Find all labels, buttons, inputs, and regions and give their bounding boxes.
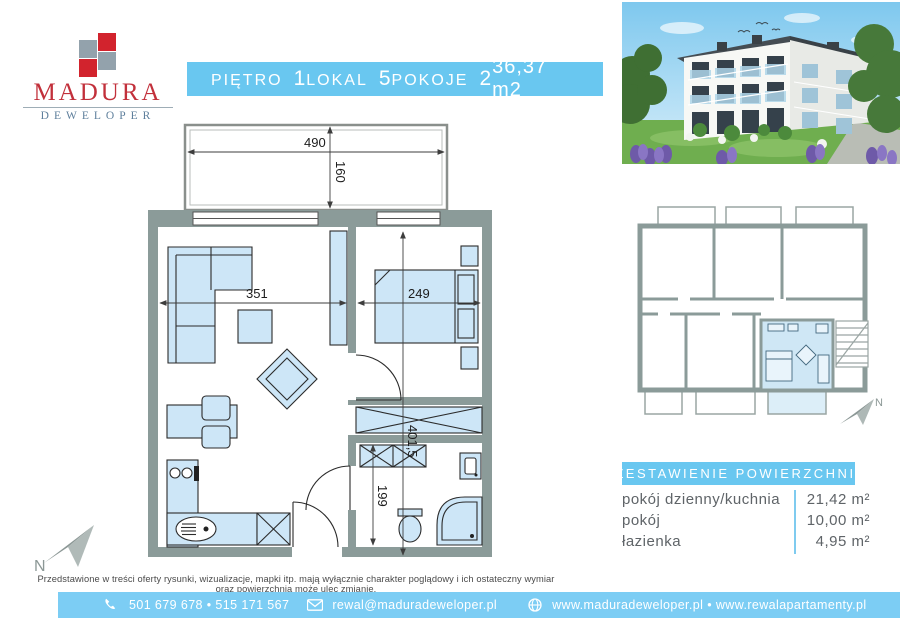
washing-machine	[460, 453, 481, 479]
kitchen-sink	[176, 517, 216, 541]
nightstand-top	[461, 246, 478, 266]
toilet	[398, 509, 422, 542]
dim-apartment-depth: 401,5	[405, 425, 420, 458]
side-table	[238, 310, 272, 343]
highlighted-unit	[761, 320, 833, 390]
logo-square-red-tr	[98, 33, 116, 51]
phone-contact[interactable]: 501 679 678 • 515 171 567	[104, 598, 289, 612]
websites: www.maduradeweloper.pl • www.rewalaparta…	[552, 598, 866, 612]
website-contact[interactable]: www.maduradeweloper.pl • www.rewalaparta…	[527, 598, 866, 612]
unit-header-banner: PIĘTRO 1 LOKAL 5 POKOJE 2 36,37 m2	[187, 62, 603, 96]
dim-balcony-width: 490	[304, 135, 326, 150]
logo-square-gray-tl	[79, 40, 97, 58]
areas-title: ZESTAWIENIE POWIERZCHNI:	[615, 466, 861, 481]
overview-north-label: N	[875, 397, 883, 409]
rooms-label: POKOJE	[392, 72, 469, 90]
radiator	[330, 231, 347, 345]
footer-contact-bar: 501 679 678 • 515 171 567 rewal@madurade…	[58, 592, 900, 618]
area-row: łazienka 4,95 m²	[622, 531, 872, 552]
north-arrow: N	[34, 525, 94, 575]
logo-square-gray-br	[98, 52, 116, 70]
globe-icon	[527, 598, 543, 612]
unit-label: LOKAL	[306, 72, 368, 90]
envelope-icon	[307, 598, 323, 612]
unit-group: LOKAL 5	[306, 67, 391, 91]
logo-square-red-bl	[79, 59, 97, 77]
disclaimer-text: Przedstawione w treści oferty rysunki, w…	[36, 574, 556, 594]
dim-bedroom-width: 249	[408, 286, 430, 301]
stairs	[836, 321, 868, 367]
brand-name: MADURA	[23, 80, 173, 105]
brochure-page: MADURA DEWELOPER PIĘTRO 1 LOKAL 5 POKOJE…	[0, 0, 900, 636]
dim-living-width: 351	[246, 286, 268, 301]
unit-value: 5	[379, 67, 392, 91]
areas-title-banner: ZESTAWIENIE POWIERZCHNI:	[622, 462, 855, 485]
area-row: pokój dzienny/kuchnia 21,42 m²	[622, 489, 872, 510]
email-contact[interactable]: rewal@maduradeweloper.pl	[307, 598, 497, 612]
areas-table: pokój dzienny/kuchnia 21,42 m² pokój 10,…	[622, 489, 872, 552]
building-overview-plan: N	[628, 193, 888, 433]
phone-numbers: 501 679 678 • 515 171 567	[129, 598, 289, 612]
rooms-group: POKOJE 2	[392, 67, 493, 91]
bed	[375, 270, 478, 343]
floor-group: PIĘTRO 1	[211, 67, 306, 91]
dim-hall-depth: 199	[375, 485, 390, 507]
floor-value: 1	[294, 67, 307, 91]
windows	[193, 212, 440, 225]
building-photo	[622, 2, 900, 164]
area-label: pokój dzienny/kuchnia	[622, 489, 782, 510]
dim-balcony-depth: 160	[333, 161, 348, 183]
email-address: rewal@maduradeweloper.pl	[332, 598, 497, 612]
rooms-value: 2	[479, 67, 492, 91]
total-area-value: 36,37 m2	[492, 56, 579, 102]
overview-north-arrow: N	[840, 397, 883, 425]
shower	[437, 497, 482, 545]
nightstand-bottom	[461, 347, 478, 369]
north-label: N	[34, 558, 46, 575]
logo-squares-icon	[79, 33, 117, 78]
area-label: pokój	[622, 510, 782, 531]
company-logo: MADURA DEWELOPER	[23, 33, 173, 122]
area-row: pokój 10,00 m²	[622, 510, 872, 531]
areas-divider	[794, 490, 796, 554]
phone-icon	[104, 598, 120, 612]
floor-label: PIĘTRO	[211, 72, 283, 90]
kitchen-appliance	[257, 513, 290, 545]
area-label: łazienka	[622, 531, 782, 552]
apartment-floor-plan: 490 160 351 249 401,5 199 N	[30, 113, 525, 578]
brand-underline	[23, 107, 173, 108]
